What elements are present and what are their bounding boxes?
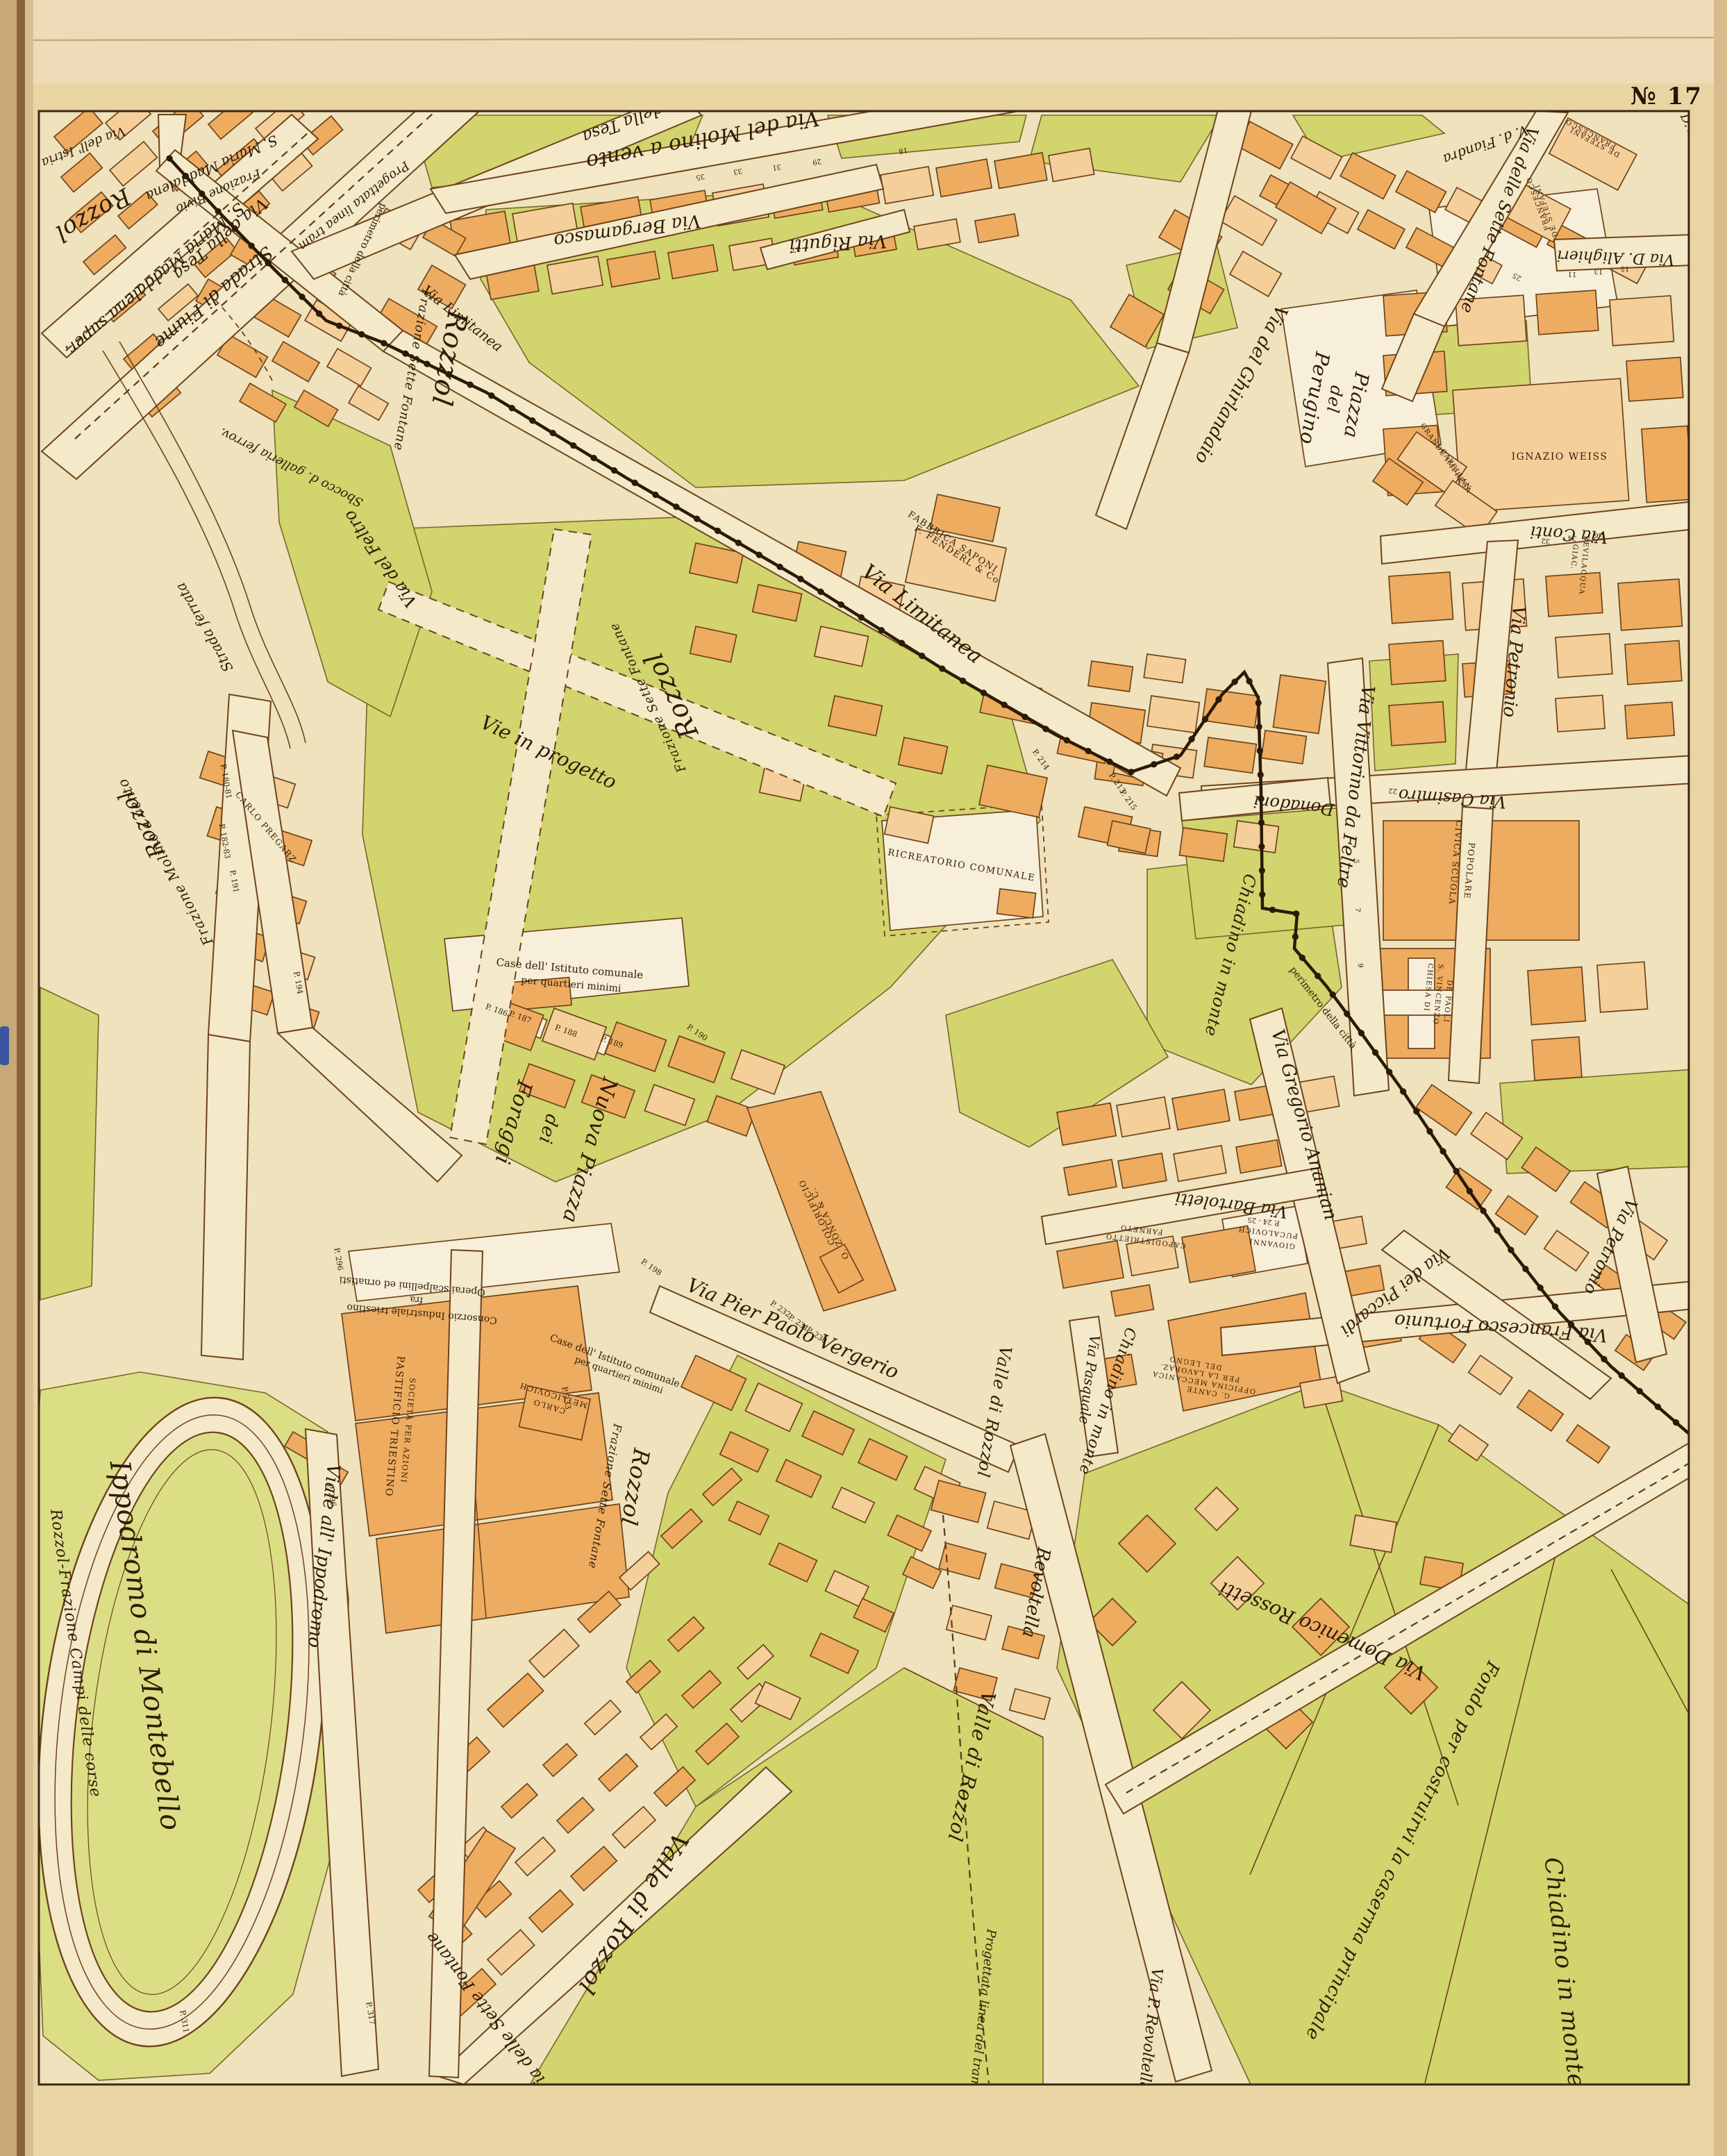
housenum-14: 22 bbox=[1388, 787, 1397, 795]
housenum-3: 33 bbox=[733, 167, 742, 176]
blue-ink-mark bbox=[0, 1026, 9, 1065]
housenum-16: 7 bbox=[1353, 908, 1362, 912]
map-svg: RozzolVia dell' IstriaS. Maria Maddalena… bbox=[0, 0, 1727, 2156]
label-consorzio-2: fra bbox=[409, 1294, 423, 1305]
plate-number: № 17 bbox=[1630, 83, 1703, 110]
housenum-11: 32 bbox=[1541, 537, 1550, 545]
paper-right-edge bbox=[1714, 0, 1727, 2156]
housenum-12: 34 bbox=[1567, 534, 1576, 542]
book-spine bbox=[0, 0, 33, 2156]
ricreatorio-wing bbox=[997, 889, 1036, 918]
housenum-6: 18 bbox=[898, 146, 908, 155]
housenum-17: 9 bbox=[1356, 963, 1365, 968]
housenum-8: 11 bbox=[1567, 270, 1576, 278]
housenum-4: 31 bbox=[771, 162, 781, 172]
housenum-5: 29 bbox=[812, 157, 821, 166]
housenum-10: 15 bbox=[1620, 265, 1629, 272]
paper-top-band bbox=[0, 0, 1727, 83]
ignazio-weiss-building bbox=[1453, 378, 1629, 512]
owner-ignazio-weiss: IGNAZIO WEISS bbox=[1512, 451, 1608, 462]
housenum-2: 35 bbox=[695, 172, 705, 181]
housenum-9: 13 bbox=[1594, 267, 1603, 275]
map-sheet: RozzolVia dell' IstriaS. Maria Maddalena… bbox=[0, 0, 1727, 2156]
housenum-13: 36 bbox=[1594, 531, 1603, 540]
housenum-15: 5 bbox=[1352, 859, 1360, 864]
housenum-1: 37 bbox=[791, 244, 801, 253]
